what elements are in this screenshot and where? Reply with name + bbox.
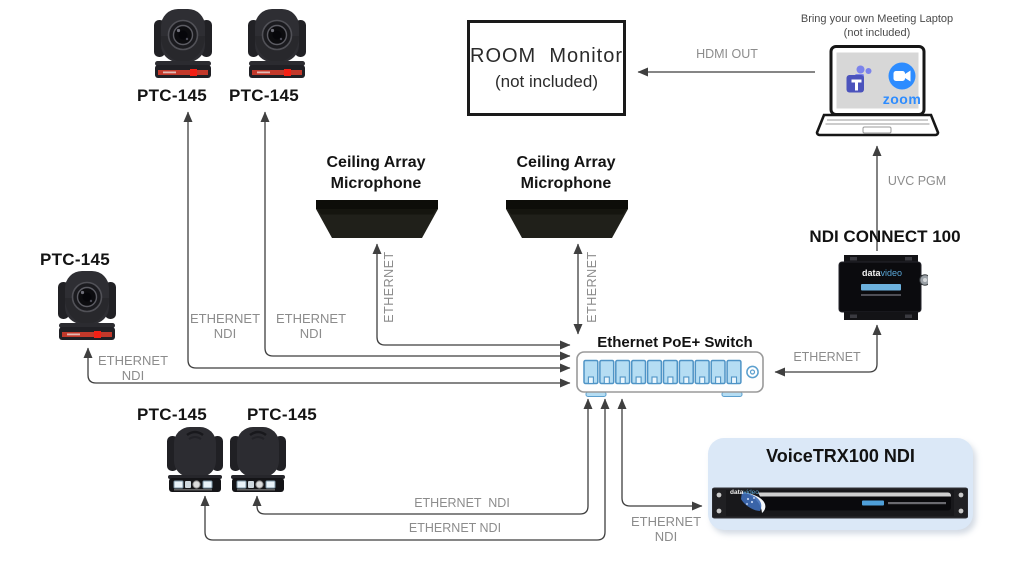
ceiling-mic-1-label: Ceiling Array Microphone — [306, 152, 446, 194]
brand-part2: video — [743, 489, 759, 496]
voicetrx-rack: datavideo — [712, 486, 968, 520]
poe-switch-icon — [576, 351, 768, 397]
ptz-camera-front-icon — [56, 270, 118, 344]
ethernet-ndi-line2: NDI — [185, 326, 265, 341]
room-monitor: ROOM Monitor (not included) — [467, 20, 626, 116]
brand-part1: data — [730, 489, 743, 496]
ptz-camera-bottom-1 — [166, 426, 224, 494]
ceiling-mic-icon — [316, 200, 438, 240]
ndi-connect-100: datavideo — [836, 253, 928, 323]
av-system-diagram: PTC-145 PTC-145 PTC-145 PTC-145 PTC-145 … — [0, 0, 1030, 575]
ethernet-ndi-line1: ETHERNET — [93, 353, 173, 368]
zoom-wordmark: zoom — [875, 91, 929, 107]
ndi-connect-label: NDI CONNECT 100 — [795, 227, 975, 247]
ethernet-ndi-line2: NDI — [626, 529, 706, 544]
camera-left-label: PTC-145 — [35, 250, 115, 270]
cable-mic1-to-switch — [377, 244, 570, 345]
ceiling-mic-2-label-line2: Microphone — [496, 173, 636, 194]
switch-power-port — [747, 366, 758, 377]
camera-bottom-1-label: PTC-145 — [132, 405, 212, 425]
ethernet-ndi-line1: ETHERNET — [626, 514, 706, 529]
zoom-camera-icon — [889, 63, 916, 90]
ethernet-ndi-label-cam-top2: ETHERNET NDI — [271, 311, 351, 341]
ethernet-ndi-line2: NDI — [271, 326, 351, 341]
ceiling-mic-1-label-line1: Ceiling Array — [306, 152, 446, 173]
switch-label: Ethernet PoE+ Switch — [586, 334, 764, 351]
ndi-connect-brand: datavideo — [836, 268, 928, 278]
ptz-camera-front-icon — [152, 8, 214, 82]
ethernet-ndi-line1: ETHERNET — [185, 311, 265, 326]
ceiling-mic-1 — [316, 200, 438, 240]
ptz-camera-top-1 — [152, 8, 214, 82]
ptz-camera-rear-icon — [229, 426, 287, 494]
ethernet-ndi-line1: ETHERNET — [271, 311, 351, 326]
ethernet-ndi-label-voicetrx: ETHERNET NDI — [626, 514, 706, 544]
ceiling-mic-icon — [506, 200, 628, 240]
ethernet-label-ndi-connect: ETHERNET — [787, 350, 867, 364]
ptz-camera-bottom-2 — [229, 426, 287, 494]
meeting-laptop: zoom — [815, 45, 940, 142]
ptz-camera-left — [56, 270, 118, 344]
ceiling-mic-1-label-line2: Microphone — [306, 173, 446, 194]
laptop-title-line1: Bring your own Meeting Laptop — [787, 12, 967, 26]
ceiling-mic-2-label-line1: Ceiling Array — [496, 152, 636, 173]
laptop-title: Bring your own Meeting Laptop (not inclu… — [787, 12, 967, 40]
ndi-connect-icon — [836, 253, 928, 323]
uvc-pgm-label: UVC PGM — [877, 174, 957, 188]
ceiling-mic-2 — [506, 200, 628, 240]
cable-ndi-connect-to-switch — [775, 325, 877, 372]
brand-part1: data — [862, 268, 881, 278]
ptz-camera-front-icon — [246, 8, 308, 82]
ethernet-label-mic1: ETHERNET — [382, 242, 396, 332]
voicetrx-label: VoiceTRX100 NDI — [718, 446, 963, 467]
camera-top-2-label: PTC-145 — [224, 86, 304, 106]
cable-switch-to-voicetrx — [622, 399, 702, 506]
ptz-camera-top-2 — [246, 8, 308, 82]
room-monitor-title: ROOM Monitor — [470, 45, 623, 68]
hdmi-out-label: HDMI OUT — [687, 47, 767, 61]
voicetrx-brand: datavideo — [730, 489, 770, 496]
ethernet-label-mic2: ETHERNET — [585, 242, 599, 332]
camera-top-1-label: PTC-145 — [132, 86, 212, 106]
ethernet-ndi-label-cam-left: ETHERNET NDI — [93, 353, 173, 383]
laptop-title-line2: (not included) — [787, 26, 967, 40]
poe-switch — [576, 351, 768, 397]
room-monitor-subtitle: (not included) — [470, 72, 623, 92]
ethernet-ndi-line2: NDI — [93, 368, 173, 383]
ethernet-ndi-label-cam-bottom2: ETHERNET NDI — [382, 496, 542, 510]
ethernet-ndi-label-cam-top1: ETHERNET NDI — [185, 311, 265, 341]
ethernet-ndi-label-cam-bottom1: ETHERNET NDI — [375, 521, 535, 535]
ptz-camera-rear-icon — [166, 426, 224, 494]
brand-part2: video — [881, 268, 903, 278]
ceiling-mic-2-label: Ceiling Array Microphone — [496, 152, 636, 194]
camera-bottom-2-label: PTC-145 — [242, 405, 322, 425]
